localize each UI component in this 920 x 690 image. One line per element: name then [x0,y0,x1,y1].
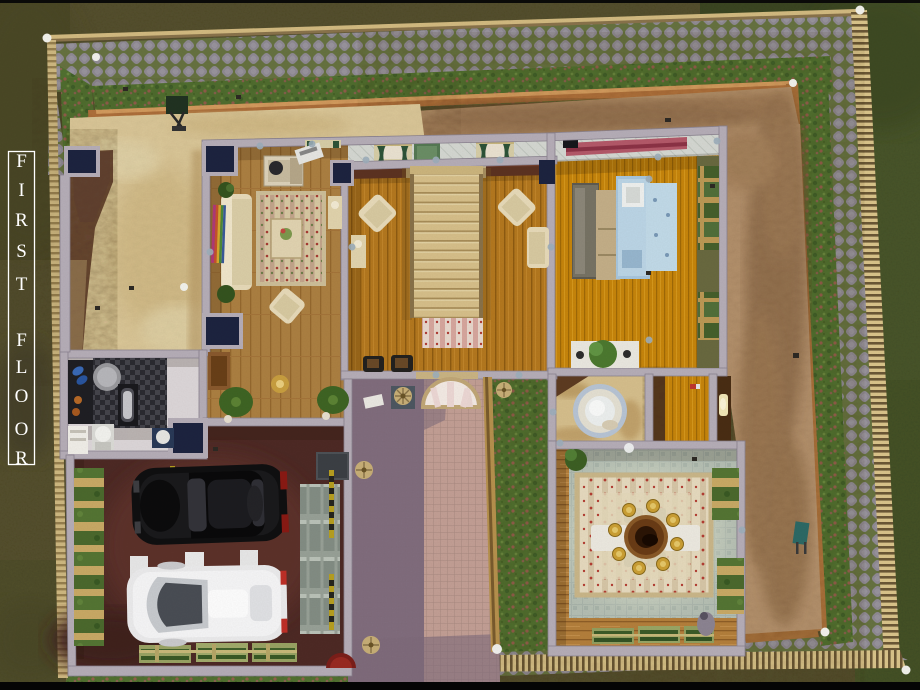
svg-text:T: T [16,274,28,295]
svg-text:S: S [16,241,27,262]
svg-text:F: F [16,330,27,351]
svg-text:O: O [15,386,29,407]
svg-text:R: R [15,448,28,469]
svg-text:F: F [16,151,27,172]
svg-text:O: O [15,419,29,440]
svg-text:R: R [15,210,28,231]
svg-text:L: L [16,357,28,378]
svg-text:I: I [18,180,24,201]
